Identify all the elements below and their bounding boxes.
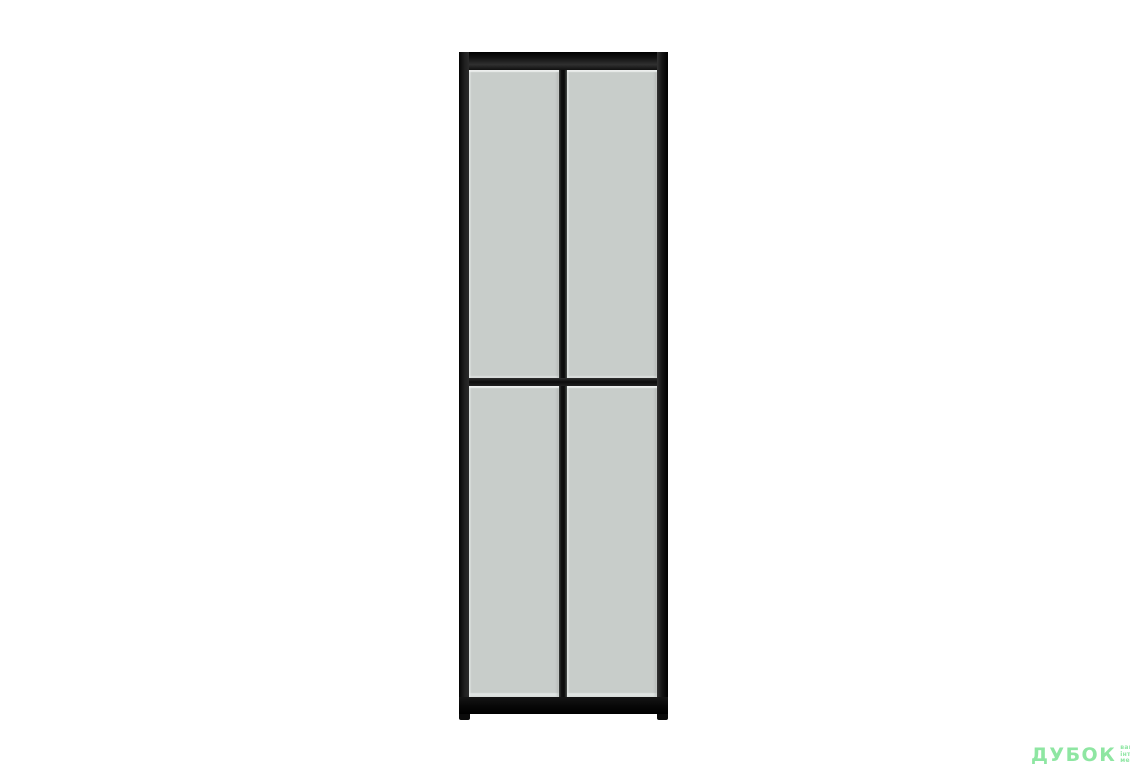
cabinet-top-frame <box>459 52 668 70</box>
store-watermark: ДУБОК ваша інтернет меблі <box>1031 744 1130 766</box>
middle-rail <box>469 378 657 386</box>
cabinet-base-plinth <box>459 697 668 714</box>
watermark-tagline-line3: меблі <box>1120 758 1130 765</box>
product-image: ДУБОК ваша інтернет меблі <box>0 0 1130 773</box>
cabinet-right-frame <box>657 52 668 714</box>
cabinet-doors <box>469 70 657 697</box>
cabinet-left-frame <box>459 52 469 714</box>
watermark-tagline: ваша інтернет меблі <box>1120 745 1130 765</box>
glass-panel-top-right <box>567 70 657 378</box>
glass-panel-bottom-right <box>567 386 657 697</box>
cabinet-right-foot <box>657 714 668 720</box>
watermark-logo-text: ДУБОК <box>1031 744 1116 766</box>
glass-panel-bottom-left <box>469 386 559 697</box>
glass-panel-top-left <box>469 70 559 378</box>
cabinet <box>459 52 668 714</box>
cabinet-left-foot <box>459 714 470 720</box>
